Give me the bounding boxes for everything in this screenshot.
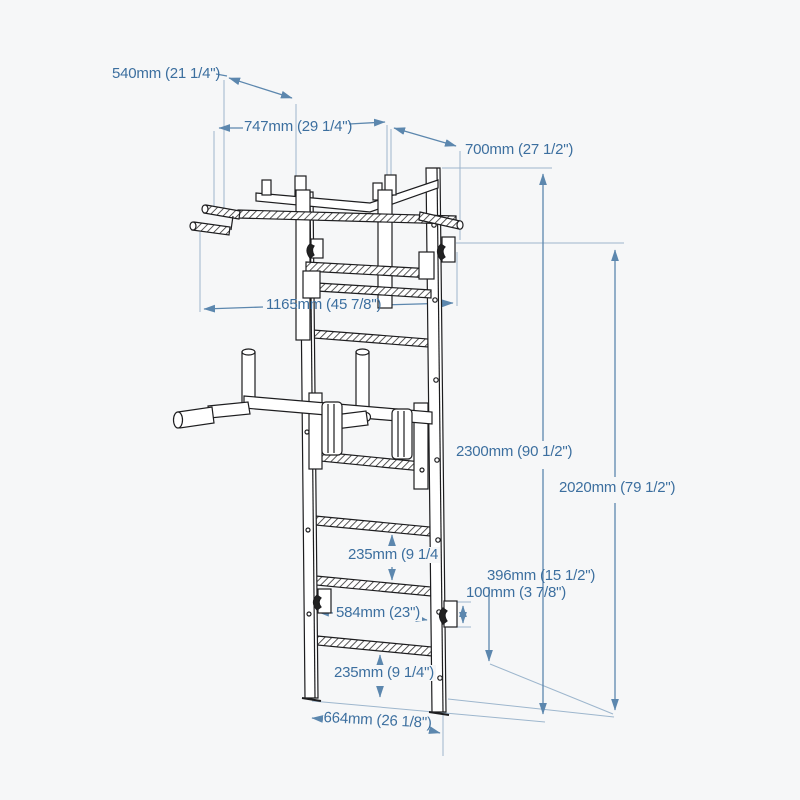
wall-base-line [490,664,613,714]
dip-grip-left [178,407,214,428]
pull-up-grip-left-upper [204,205,240,219]
dimension-label-396: 396mm (15 1/2") [487,568,595,584]
cushion-bracket-left [303,271,320,298]
dimension-label-235-upper: 235mm (9 1/4 [346,547,440,563]
dimension-label-100: 100mm (3 7/8") [466,585,566,601]
dim-1165-line-left [204,307,263,309]
dim-664-line-left [312,718,323,719]
dimension-label-1165: 1165mm (45 7/8") [266,297,381,313]
ladder-drawing [174,168,464,715]
pull-up-grip-left-lower [192,222,230,235]
cushion-bracket-right [419,252,434,279]
top-beam [256,180,438,212]
dimension-label-2300: 2300mm (90 1/2") [454,444,574,460]
dim-540-line [229,78,292,98]
dimension-label-700: 700mm (27 1/2") [465,142,573,158]
dimension-diagram: 540mm (21 1/4") 747mm (29 1/4") 700mm (2… [0,0,800,800]
dimension-label-235-lower: 235mm (9 1/4") [332,665,436,681]
dimension-label-584: 584mm (23") [334,605,422,621]
dip-post-right [356,352,369,412]
dimension-label-540: 540mm (21 1/4") [112,66,220,82]
dim-747-line-right [349,122,385,124]
pull-up-assembly [190,175,463,340]
dimension-label-2020: 2020mm (79 1/2") [557,480,677,496]
dim-700-line [394,128,456,146]
floor-line-rear [448,699,614,717]
dimension-label-747: 747mm (29 1/4") [244,119,352,135]
cushion-bar-upper [306,262,433,278]
dim-1165-line-right [382,303,453,305]
dip-arm-left [208,402,250,418]
